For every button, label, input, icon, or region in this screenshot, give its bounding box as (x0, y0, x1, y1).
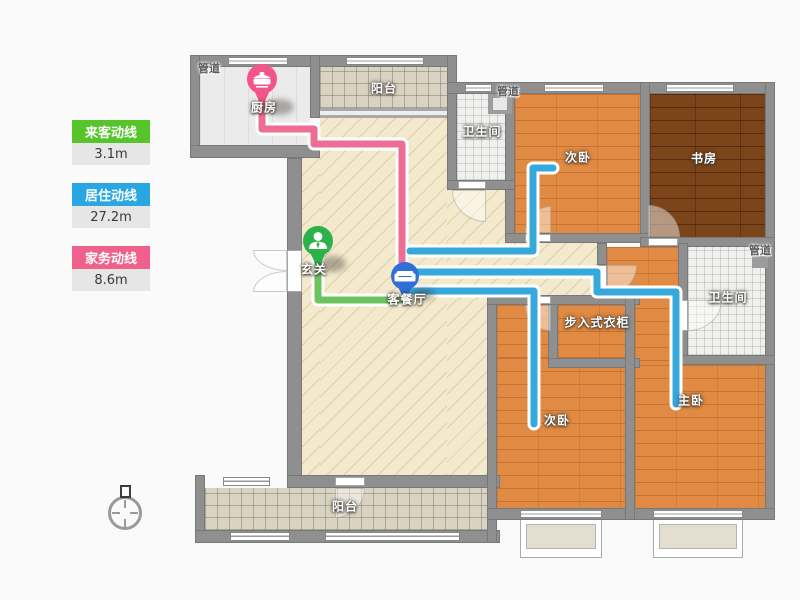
bedroom-top-label: 次卧 (565, 149, 591, 166)
window (230, 532, 290, 541)
wall (678, 355, 775, 365)
bedroom-bottom-label: 次卧 (544, 412, 570, 429)
entry-label: 玄关 (301, 261, 327, 278)
bath-right-label: 卫生间 (708, 289, 747, 306)
compass-tick (130, 512, 138, 514)
hallway-floor (447, 243, 597, 300)
master-label: 主卧 (678, 392, 704, 409)
north-indicator (120, 485, 131, 498)
door (527, 296, 551, 304)
duct-label: 管道 (749, 242, 771, 258)
wall (447, 55, 457, 190)
compass-tick (124, 500, 126, 508)
window (520, 510, 602, 518)
balcony-bottom-label: 阳台 (332, 498, 358, 515)
closet-label: 步入式衣柜 (564, 314, 629, 331)
wall (487, 295, 497, 543)
duct-label: 管道 (497, 83, 519, 99)
living-label: 客餐厅 (387, 291, 426, 308)
window (223, 477, 270, 486)
window (465, 84, 492, 92)
door-swing (253, 250, 287, 271)
master-floor (635, 365, 765, 508)
wall (765, 82, 775, 520)
duct-label: 管道 (198, 60, 220, 76)
door (458, 181, 486, 189)
floor-plan-viewer: 管道 厨房 阳台 卫生间 管道 次卧 书房 管道 卫生间 玄关 客餐厅 步入式衣… (0, 0, 800, 600)
compass-tick (124, 519, 126, 527)
duct-niche (493, 98, 507, 110)
legend-resident-line[interactable]: 居住动线 (72, 183, 150, 206)
door (525, 234, 551, 242)
door (648, 238, 678, 246)
bath-top-label: 卫生间 (462, 123, 501, 140)
window (653, 510, 743, 518)
legend-resident-value: 27.2m (72, 206, 150, 228)
legend-visitor-line[interactable]: 来客动线 (72, 120, 150, 143)
wall (597, 243, 607, 265)
window (346, 57, 424, 65)
kitchen-label: 厨房 (251, 99, 277, 116)
legend-visitor-value: 3.1m (72, 143, 150, 165)
wall (287, 158, 302, 488)
legend-household-value: 8.6m (72, 269, 150, 291)
study-label: 书房 (691, 150, 717, 167)
wall (287, 475, 500, 488)
bay-window (520, 518, 602, 558)
wall (190, 145, 320, 158)
window (544, 84, 604, 92)
door (597, 265, 607, 295)
door-swing (253, 271, 287, 292)
compass-tick (112, 512, 120, 514)
wall (310, 55, 320, 118)
balcony-top-rail (320, 108, 447, 118)
door (335, 477, 365, 486)
balcony-top-label: 阳台 (371, 80, 397, 97)
master-floor (635, 295, 678, 365)
legend-household-line[interactable]: 家务动线 (72, 246, 150, 269)
bay-window (653, 518, 743, 558)
living-floor (302, 158, 320, 475)
wall (487, 295, 640, 305)
window (666, 84, 734, 92)
door (680, 300, 688, 331)
bedroom-bottom-floor (497, 358, 625, 508)
window (325, 532, 460, 541)
